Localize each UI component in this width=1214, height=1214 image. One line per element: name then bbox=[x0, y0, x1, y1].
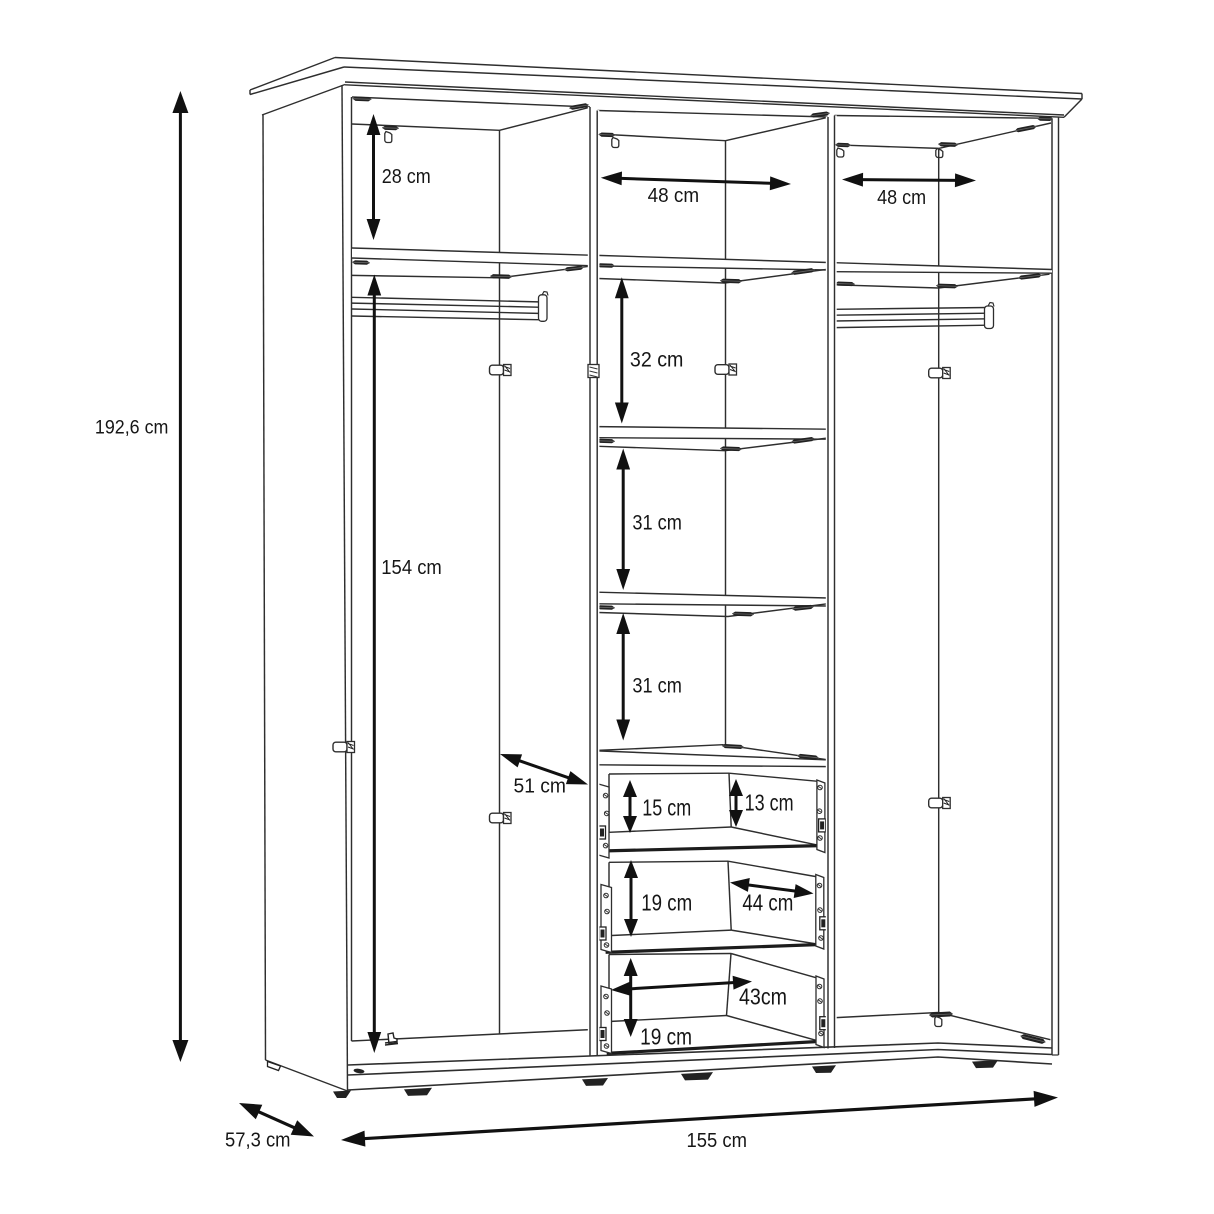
svg-text:13 cm: 13 cm bbox=[745, 790, 794, 816]
svg-text:154 cm: 154 cm bbox=[381, 557, 442, 579]
svg-text:192,6 cm: 192,6 cm bbox=[95, 418, 168, 439]
svg-text:48 cm: 48 cm bbox=[877, 187, 926, 209]
svg-text:15 cm: 15 cm bbox=[642, 795, 691, 821]
svg-text:19 cm: 19 cm bbox=[640, 1024, 692, 1050]
svg-text:43cm: 43cm bbox=[739, 984, 787, 1010]
svg-text:57,3 cm: 57,3 cm bbox=[225, 1130, 291, 1152]
svg-text:44 cm: 44 cm bbox=[742, 890, 793, 916]
svg-text:31 cm: 31 cm bbox=[632, 675, 682, 698]
svg-text:51 cm: 51 cm bbox=[514, 776, 567, 798]
svg-text:28 cm: 28 cm bbox=[382, 166, 431, 188]
svg-text:32 cm: 32 cm bbox=[630, 349, 684, 372]
svg-text:48 cm: 48 cm bbox=[648, 185, 700, 207]
svg-text:19 cm: 19 cm bbox=[641, 890, 692, 916]
svg-text:31 cm: 31 cm bbox=[632, 512, 682, 535]
svg-text:155 cm: 155 cm bbox=[687, 1130, 748, 1152]
